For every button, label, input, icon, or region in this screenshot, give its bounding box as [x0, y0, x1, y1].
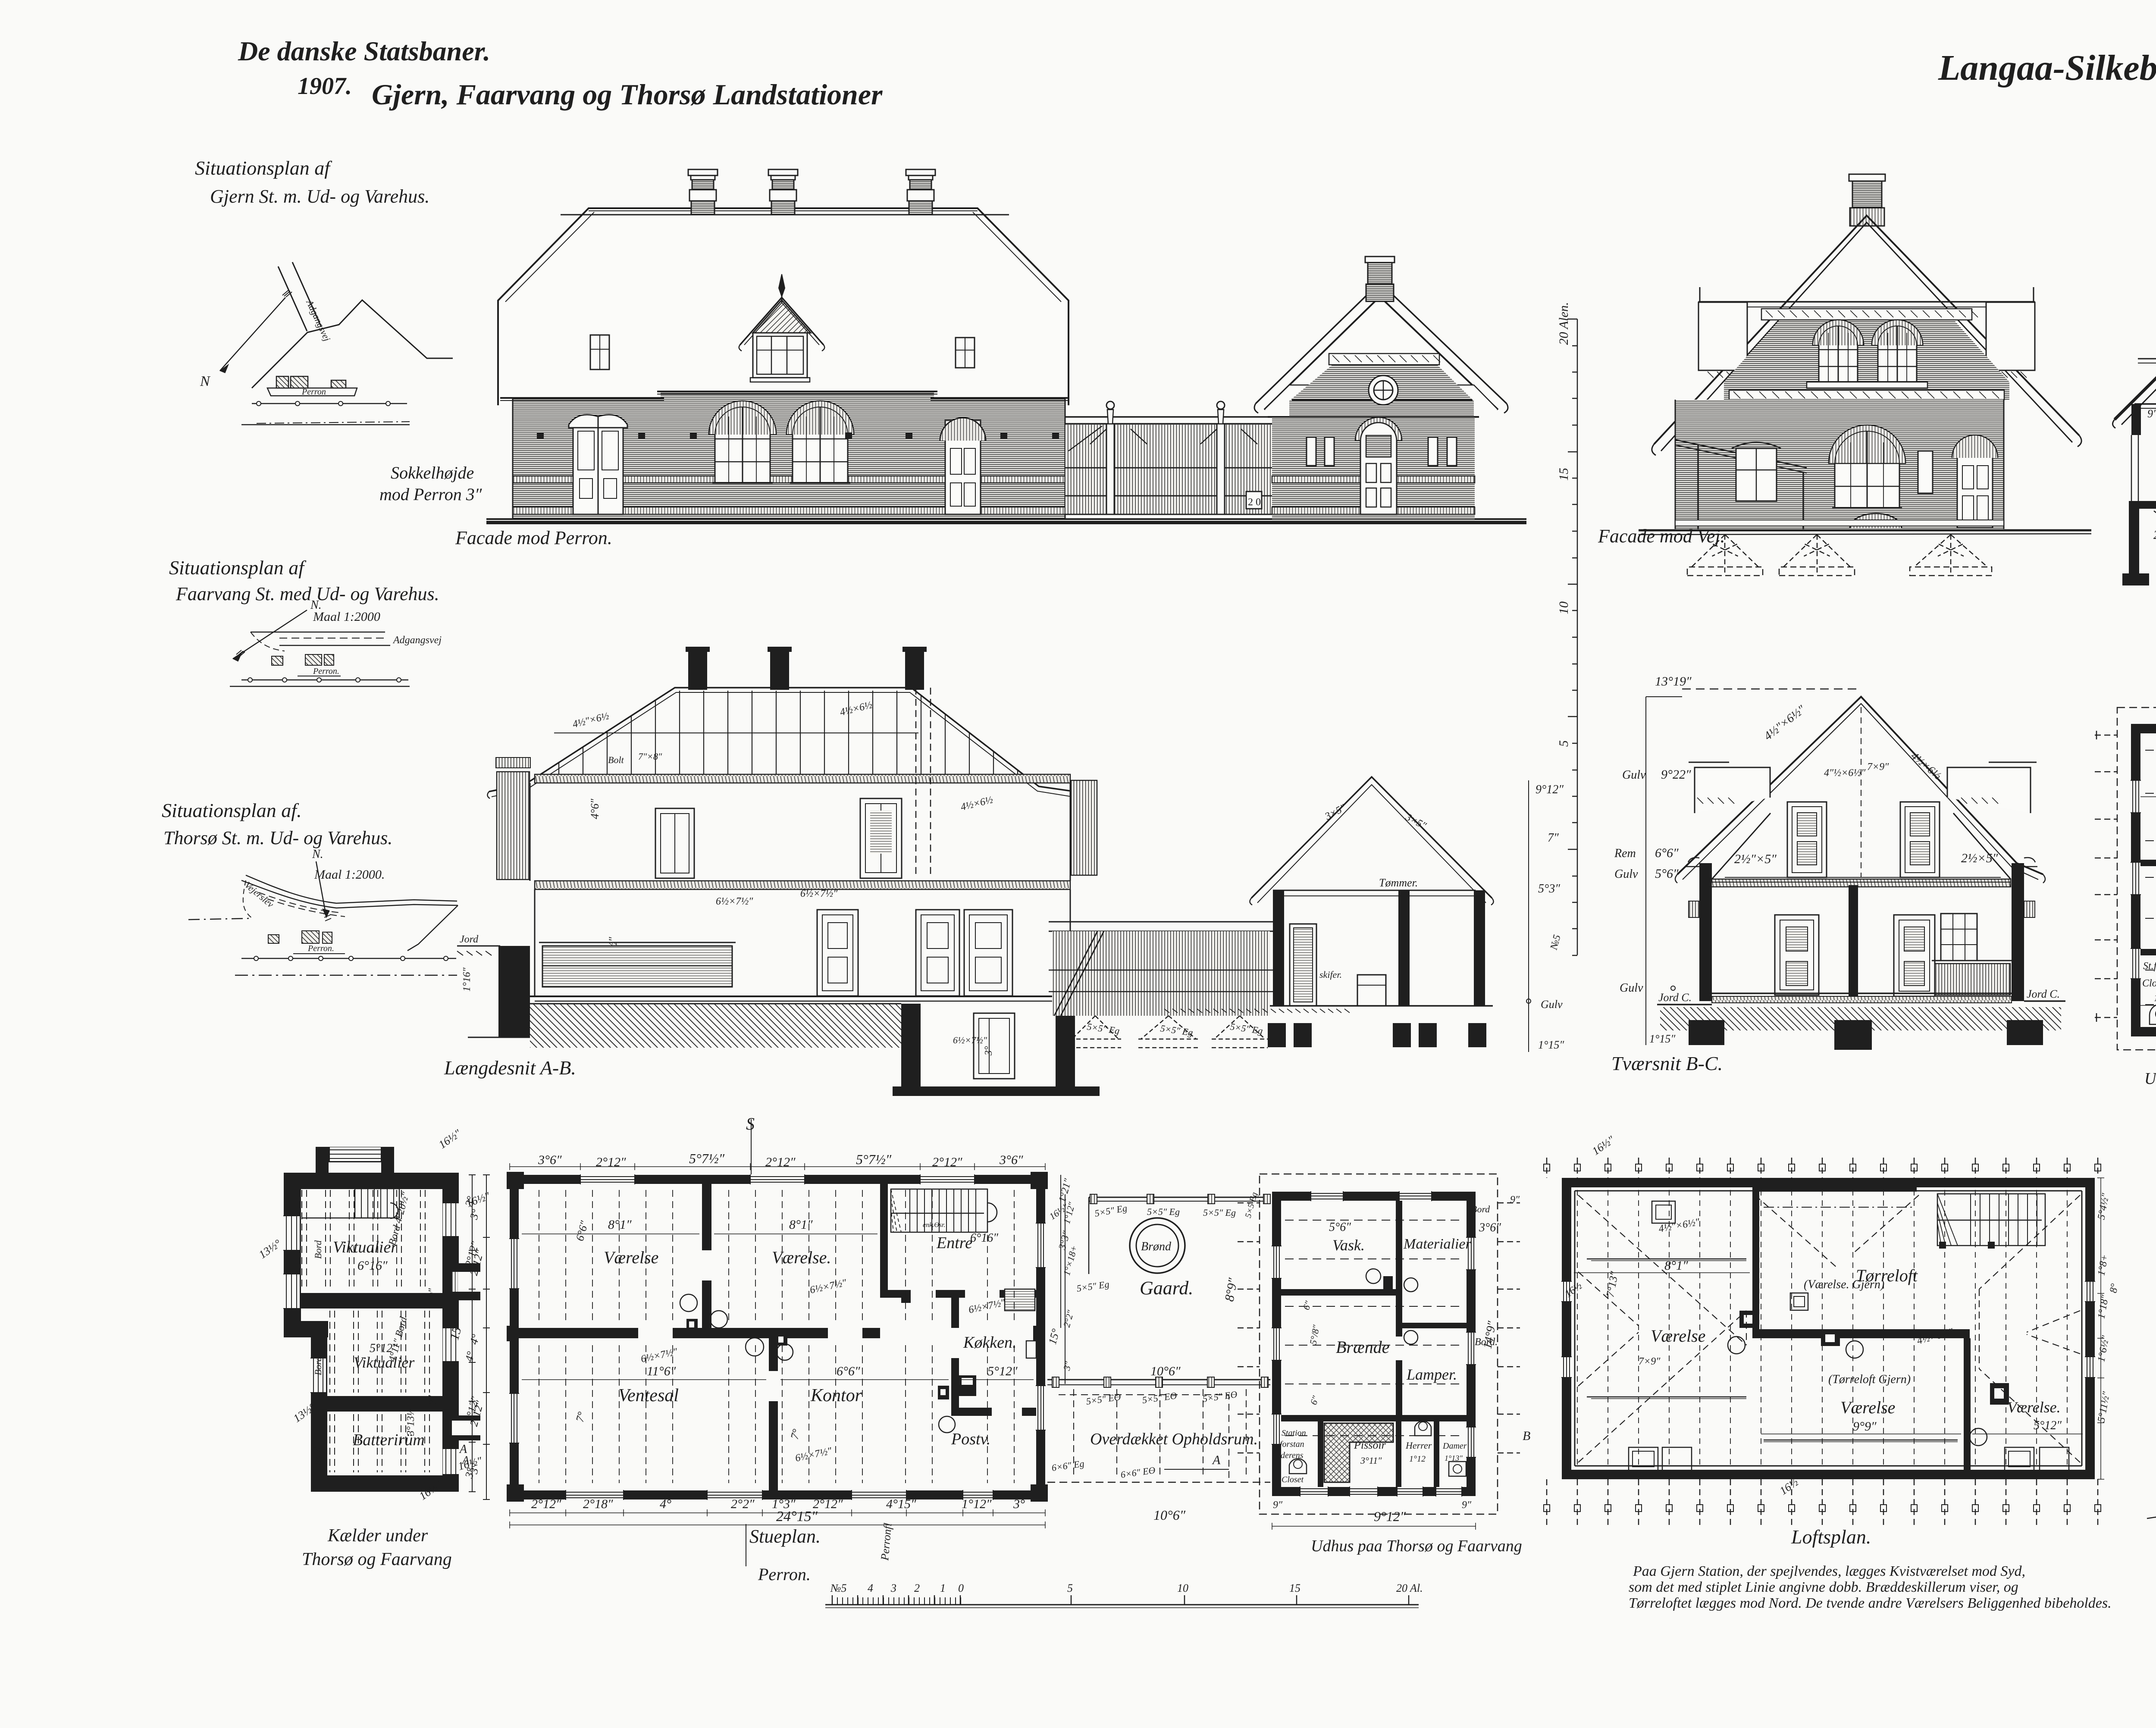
svg-text:Facade mod Vej.: Facade mod Vej.	[1598, 526, 1725, 547]
svg-text:11°6″: 11°6″	[647, 1364, 676, 1378]
svg-text:7″×8″: 7″×8″	[638, 751, 662, 762]
svg-text:Thorsø og Faarvang: Thorsø og Faarvang	[302, 1550, 452, 1569]
svg-text:5°12″: 5°12″	[2034, 1419, 2062, 1432]
svg-text:Sokkelhøjde: Sokkelhøjde	[391, 463, 474, 482]
svg-text:2°18″: 2°18″	[583, 1497, 613, 1511]
svg-text:Længdesnit A-B.: Længdesnit A-B.	[444, 1057, 576, 1079]
svg-text:10: 10	[1557, 601, 1571, 614]
svg-text:10°6″: 10°6″	[1153, 1507, 1186, 1523]
svg-text:5×5 Eg: 5×5 Eg	[1244, 1191, 1260, 1219]
svg-text:Maal 1:2000: Maal 1:2000	[313, 610, 380, 624]
svg-text:Perron: Perron	[301, 387, 326, 397]
svg-text:S: S	[746, 1114, 755, 1133]
svg-text:6½×7½″: 6½×7½″	[794, 1445, 834, 1464]
svg-text:Vask.: Vask.	[1332, 1237, 1365, 1254]
svg-text:2°12″: 2°12″	[596, 1155, 626, 1169]
svg-text:6½×7½″: 6½×7½″	[716, 896, 753, 907]
svg-text:Perron.: Perron.	[313, 667, 339, 676]
svg-text:1°15″: 1°15″	[1649, 1033, 1676, 1045]
svg-text:4: 4	[868, 1582, 873, 1594]
svg-text:10°6″: 10°6″	[1150, 1364, 1181, 1378]
svg-text:Herrer: Herrer	[1405, 1440, 1432, 1451]
svg-text:A: A	[459, 1443, 467, 1456]
svg-text:Gaard.: Gaard.	[1140, 1277, 1193, 1299]
svg-text:5: 5	[1067, 1582, 1073, 1594]
svg-text:8°9″: 8°9″	[1222, 1277, 1240, 1302]
svg-text:Station: Station	[1282, 1428, 1306, 1438]
svg-text:Situationsplan af: Situationsplan af	[169, 557, 307, 579]
svg-text:7°13″: 7°13″	[1604, 1270, 1620, 1299]
svg-text:9″: 9″	[427, 1288, 438, 1298]
svg-text:Adgangsvej: Adgangsvej	[304, 297, 333, 343]
svg-text:3°6″: 3°6″	[1479, 1221, 1501, 1234]
svg-text:3: 3	[890, 1582, 896, 1594]
svg-text:15: 15	[1557, 468, 1571, 481]
svg-text:6×6″ Eg: 6×6″ Eg	[1051, 1458, 1085, 1473]
svg-text:5×5″ Eg: 5×5″ Eg	[1086, 1021, 1120, 1036]
svg-text:5°/8″: 5°/8″	[1307, 1324, 1322, 1346]
svg-text:4°: 4°	[660, 1497, 671, 1511]
svg-text:3°: 3°	[983, 1046, 994, 1056]
svg-text:Kontor: Kontor	[810, 1386, 862, 1406]
svg-text:Gjern, Faarvang og Thorsø Land: Gjern, Faarvang og Thorsø Landstationer	[372, 78, 883, 111]
svg-text:Rem: Rem	[1614, 847, 1636, 860]
svg-text:4½×6½: 4½×6½	[959, 794, 994, 813]
svg-text:Perron.: Perron.	[307, 944, 334, 953]
svg-text:5°12″: 5°12″	[987, 1364, 1018, 1378]
svg-text:som det med stiplet Linie angi: som det med stiplet Linie angivne dobb. …	[1629, 1579, 2018, 1595]
svg-text:4°: 4°	[467, 1333, 482, 1346]
svg-text:9°12″: 9°12″	[1536, 783, 1564, 796]
svg-text:Lamper.: Lamper.	[1406, 1366, 1457, 1383]
svg-text:5°3″: 5°3″	[1538, 882, 1560, 895]
svg-text:Maal 1:2000.: Maal 1:2000.	[314, 867, 385, 882]
svg-text:Værelse: Værelse	[1840, 1398, 1895, 1417]
svg-text:9″: 9″	[2147, 407, 2156, 420]
svg-text:Bolt: Bolt	[608, 754, 624, 765]
svg-text:2: 2	[914, 1582, 920, 1594]
svg-text:15: 15	[1289, 1582, 1300, 1594]
svg-text:Ventesal: Ventesal	[618, 1386, 679, 1406]
svg-text:6½×7½″: 6½×7½″	[953, 1035, 987, 1046]
svg-text:8°: 8°	[2108, 1283, 2120, 1294]
svg-text:5×5″ Eg: 5×5″ Eg	[1147, 1206, 1180, 1217]
svg-text:5: 5	[1557, 740, 1571, 747]
svg-text:5×5″ EƟ: 5×5″ EƟ	[1085, 1391, 1122, 1407]
svg-text:Kælder under: Kælder under	[327, 1526, 428, 1546]
svg-text:16½″: 16½″	[436, 1127, 464, 1151]
svg-text:Situationsplan af.: Situationsplan af.	[162, 799, 302, 821]
svg-text:Postv.: Postv.	[951, 1430, 990, 1448]
svg-text:7×9″: 7×9″	[1639, 1356, 1661, 1367]
svg-text:5×5″ Eg: 5×5″ Eg	[1159, 1023, 1194, 1038]
svg-text:13°19″: 13°19″	[1655, 674, 1692, 689]
svg-text:Closet: Closet	[1282, 1475, 1304, 1484]
svg-text:Overdækket Opholdsrum.: Overdækket Opholdsrum.	[1090, 1430, 1258, 1448]
svg-text:Jord C.: Jord C.	[1658, 991, 1692, 1004]
svg-text:6″: 6″	[1300, 1299, 1314, 1311]
svg-text:4°: 4°	[463, 1350, 477, 1363]
svg-text:2°2″: 2°2″	[731, 1497, 755, 1511]
svg-text:Adgangsvej: Adgangsvej	[392, 635, 442, 646]
svg-text:6½×7½″: 6½×7½″	[800, 888, 838, 899]
svg-text:5×5″ Eg: 5×5″ Eg	[1203, 1207, 1236, 1218]
svg-text:8°1″: 8°1″	[1664, 1258, 1688, 1273]
svg-text:5×5″ Eg: 5×5″ Eg	[1229, 1021, 1263, 1036]
svg-text:Køkken.: Køkken.	[963, 1334, 1016, 1352]
svg-text:4°6″: 4°6″	[589, 798, 601, 819]
svg-text:Udhus paa Gjern St.: Udhus paa Gjern St.	[2144, 1070, 2156, 1088]
svg-text:5°4½″: 5°4½″	[2096, 1192, 2111, 1221]
svg-text:Paa Gjern Station, der spejlve: Paa Gjern Station, der spejlvendes, lægg…	[1633, 1563, 2025, 1579]
svg-text:Stueplan.: Stueplan.	[749, 1526, 821, 1547]
svg-text:Gulv: Gulv	[1541, 998, 1563, 1011]
svg-text:Bord: Bord	[1471, 1204, 1490, 1215]
svg-text:Perron.: Perron.	[758, 1565, 811, 1584]
svg-text:3°6″: 3°6″	[999, 1153, 1023, 1167]
svg-text:forstan: forstan	[1280, 1440, 1304, 1449]
svg-text:№5: №5	[830, 1582, 847, 1594]
svg-text:2°12″: 2°12″	[932, 1155, 962, 1169]
svg-text:2½″×5″: 2½″×5″	[1734, 852, 1777, 866]
svg-text:2°12″: 2°12″	[2153, 529, 2156, 542]
svg-text:Tørreloftet lægges mod Nord. D: Tørreloftet lægges mod Nord. De tvende a…	[1629, 1595, 2112, 1611]
svg-text:Jord C.: Jord C.	[2027, 988, 2060, 1000]
svg-text:9°9″: 9°9″	[1853, 1419, 1877, 1434]
svg-text:Gulv: Gulv	[1620, 981, 1643, 995]
svg-text:Gulv: Gulv	[1614, 867, 1638, 881]
svg-text:Bord: Bord	[313, 1447, 323, 1466]
svg-text:Closet: Closet	[2142, 978, 2156, 989]
svg-text:5°7½″: 5°7½″	[689, 1151, 725, 1166]
svg-text:De danske Statsbaner.: De danske Statsbaner.	[238, 36, 490, 66]
svg-text:7°: 7°	[573, 1410, 588, 1423]
svg-text:enk.Ɵsr.: enk.Ɵsr.	[923, 1221, 945, 1229]
svg-text:1907.: 1907.	[298, 73, 352, 100]
svg-text:20 Al.: 20 Al.	[1396, 1582, 1423, 1594]
svg-text:Værelse.: Værelse.	[2007, 1399, 2061, 1416]
svg-text:Vejerslev: Vejerslev	[243, 880, 276, 910]
svg-text:Gjern St. m. Ud- og Varehus.: Gjern St. m. Ud- og Varehus.	[210, 186, 429, 207]
svg-text:Entre: Entre	[936, 1234, 972, 1252]
svg-text:24°15″: 24°15″	[776, 1509, 818, 1525]
svg-text:Loftsplan.: Loftsplan.	[1791, 1526, 1871, 1548]
svg-text:4″½×6½″: 4″½×6½″	[1824, 767, 1866, 779]
svg-text:Damer: Damer	[1442, 1441, 1467, 1451]
svg-text:B: B	[1523, 1429, 1530, 1443]
svg-text:15°: 15°	[1046, 1327, 1062, 1346]
svg-text:Bord: Bord	[313, 1356, 323, 1375]
svg-text:6°6″: 6°6″	[837, 1364, 860, 1378]
svg-text:5°6″: 5°6″	[1329, 1221, 1351, 1234]
svg-text:9″: 9″	[1510, 1194, 1520, 1205]
svg-text:N.: N.	[312, 848, 323, 861]
svg-text:3°13½″: 3°13½″	[405, 1403, 417, 1436]
svg-text:8°1″: 8°1″	[608, 1218, 632, 1232]
svg-text:3°: 3°	[467, 1208, 482, 1221]
svg-text:1°15″: 1°15″	[1538, 1039, 1564, 1051]
svg-text:6×6″ EƟ: 6×6″ EƟ	[1120, 1465, 1156, 1480]
svg-text:Brønd: Brønd	[1141, 1240, 1172, 1253]
svg-text:№5: №5	[1548, 933, 1563, 951]
svg-text:5°6″: 5°6″	[1655, 867, 1679, 881]
svg-text:9°22″: 9°22″	[1661, 767, 1691, 782]
svg-text:4½″×6½: 4½″×6½	[571, 711, 610, 730]
svg-text:6°16″: 6°16″	[357, 1258, 388, 1273]
svg-text:Tværsnit B-C.: Tværsnit B-C.	[1611, 1052, 1723, 1074]
svg-text:Langaa-Silkeborg Banen: Langaa-Silkeborg Banen	[1938, 48, 2156, 88]
svg-text:6½×7½″: 6½×7½″	[968, 1297, 1007, 1316]
svg-text:3°: 3°	[1013, 1497, 1025, 1511]
svg-text:mod Perron 3″: mod Perron 3″	[379, 485, 483, 504]
svg-text:1°12: 1°12	[1409, 1454, 1426, 1464]
svg-text:13½°: 13½°	[257, 1237, 283, 1261]
svg-text:Tømmer.: Tømmer.	[1379, 877, 1418, 889]
svg-text:Faarvang St. med Ud- og Varehu: Faarvang St. med Ud- og Varehus.	[175, 583, 439, 604]
svg-text:3°11″: 3°11″	[1360, 1455, 1382, 1466]
svg-text:9″: 9″	[1462, 1499, 1472, 1511]
svg-text:skifer.: skifer.	[1319, 969, 1342, 980]
svg-text:6″: 6″	[1308, 1394, 1321, 1406]
svg-text:2½×5″: 2½×5″	[1961, 851, 1998, 865]
svg-text:7″: 7″	[1548, 831, 1559, 845]
svg-text:Bord: Bord	[313, 1240, 323, 1259]
svg-text:4½×6½: 4½×6½	[1908, 749, 1944, 782]
svg-text:N: N	[200, 373, 211, 389]
svg-text:5×5″ EƟ: 5×5″ EƟ	[1202, 1389, 1238, 1404]
svg-text:9″: 9″	[427, 1395, 438, 1405]
svg-text:1°6½″: 1°6½″	[2096, 1334, 2111, 1363]
svg-text:Udhus paa Thorsø og Faarvang: Udhus paa Thorsø og Faarvang	[1311, 1537, 1522, 1555]
svg-text:Situationsplan af: Situationsplan af	[195, 157, 332, 179]
svg-text:Facade mod Perron.: Facade mod Perron.	[455, 527, 612, 548]
svg-text:3°6″: 3°6″	[538, 1153, 562, 1167]
svg-text:A: A	[1212, 1453, 1221, 1467]
svg-text:8°1″: 8°1″	[789, 1218, 813, 1232]
svg-text:1°13″: 1°13″	[2154, 992, 2156, 1003]
svg-text:5×5″ Eg: 5×5″ Eg	[1094, 1202, 1128, 1219]
svg-text:Værelse: Værelse	[604, 1248, 658, 1267]
svg-text:6°16″: 6°16″	[970, 1231, 998, 1245]
svg-text:Værelse: Værelse	[1651, 1326, 1705, 1346]
svg-text:4½×6½: 4½×6½	[839, 699, 873, 718]
svg-text:Thorsø St. m. Ud- og Varehus.: Thorsø St. m. Ud- og Varehus.	[163, 827, 392, 848]
svg-text:4°15″: 4°15″	[886, 1497, 916, 1511]
svg-text:2°2″: 2°2″	[1061, 1309, 1076, 1328]
svg-text:1°8+: 1°8+	[2096, 1253, 2110, 1277]
svg-text:1°16″: 1°16″	[461, 967, 473, 992]
svg-text:Brænde: Brænde	[1336, 1337, 1389, 1357]
svg-text:(Værelse. Gjern): (Værelse. Gjern)	[1804, 1278, 1884, 1291]
svg-text:7×9″: 7×9″	[1867, 761, 1889, 773]
svg-text:6½×7½″: 6½×7½″	[809, 1277, 848, 1296]
svg-text:5°7½″: 5°7½″	[856, 1152, 892, 1167]
svg-text:Materialier: Materialier	[1403, 1236, 1472, 1252]
svg-text:2°12″: 2°12″	[765, 1155, 796, 1169]
svg-text:3″: 3″	[1061, 1360, 1074, 1372]
svg-text:2°12″: 2°12″	[531, 1497, 561, 1511]
svg-text:5°11½″: 5°11½″	[2096, 1390, 2112, 1423]
svg-text:Jord: Jord	[460, 934, 479, 945]
svg-text:6°6″: 6°6″	[573, 1219, 591, 1242]
svg-text:16½″: 16½″	[1590, 1133, 1617, 1158]
svg-text:9″: 9″	[1273, 1499, 1283, 1511]
svg-text:10: 10	[1177, 1582, 1188, 1594]
svg-text:Perronfl: Perronfl	[878, 1522, 894, 1561]
svg-text:1°12″: 1°12″	[962, 1497, 992, 1511]
svg-text:Værelse.: Værelse.	[772, 1248, 831, 1267]
svg-text:5×5″ Eg: 5×5″ Eg	[1076, 1279, 1110, 1294]
svg-text:2 0: 2 0	[1248, 497, 1261, 508]
svg-text:1: 1	[940, 1582, 946, 1594]
svg-text:3×5″: 3×5″	[1403, 811, 1428, 832]
svg-text:Viktualier: Viktualier	[354, 1354, 415, 1371]
svg-text:Gulv: Gulv	[1622, 768, 1646, 782]
svg-text:0: 0	[958, 1582, 964, 1594]
svg-text:7°: 7°	[788, 1427, 803, 1440]
svg-text:1°18″: 1°18″	[2096, 1294, 2111, 1320]
svg-text:20 Alen.: 20 Alen.	[1557, 302, 1571, 345]
svg-text:6°6″: 6°6″	[1655, 846, 1679, 860]
svg-text:9°12″: 9°12″	[1374, 1509, 1406, 1524]
svg-text:(Tørreloft Gjern): (Tørreloft Gjern)	[1828, 1373, 1911, 1386]
svg-text:4½″×6½″: 4½″×6½″	[1761, 703, 1808, 743]
